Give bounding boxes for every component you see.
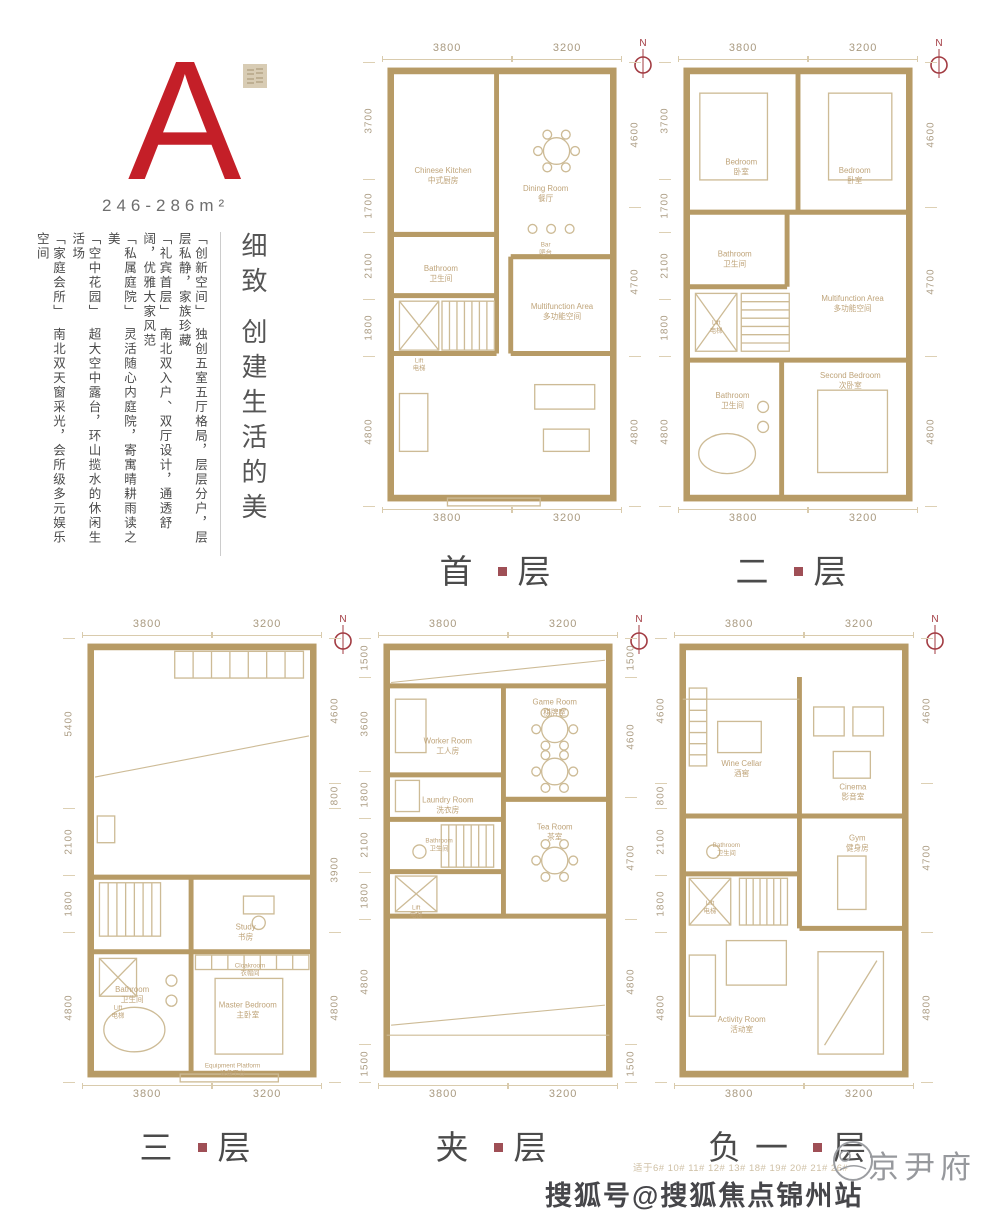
dim-label: 3600 — [352, 677, 378, 771]
dim-label: 2100 — [56, 808, 82, 874]
room-label-en: Bedroom — [839, 166, 871, 175]
floor-title: 夹层 — [352, 1121, 644, 1169]
dim-label: 3800 — [678, 42, 808, 60]
svg-text:N: N — [935, 38, 942, 49]
dim-col-right: 460047004800 — [914, 638, 940, 1083]
marketing-copy: 细致 创建生活的美 「创新空间」 独创五室五厅格局，层层分户，层层私静，家族珍藏… — [86, 232, 272, 556]
dim-label: 1800 — [352, 771, 378, 818]
floor-title: 首层 — [356, 545, 648, 593]
room-label-en: Dining Room — [523, 184, 569, 193]
room-label-en: Bathroom — [718, 250, 752, 259]
dim-label: 3200 — [212, 1085, 322, 1103]
dim-col-left: 5400210018004800 — [56, 638, 82, 1083]
unit-area-range: 246-286m² — [102, 196, 229, 216]
floor-plan-basement: 38003200N4600800210018004800Wine Cellar酒… — [648, 618, 940, 1169]
dim-col-right: 460047004800 — [622, 62, 648, 507]
room-label-en: Wine Cellar — [721, 759, 762, 768]
room-label-zh: 次卧室 — [839, 380, 862, 390]
room-label-en: Bathroom — [425, 838, 452, 845]
room-label-en: Laundry Room — [422, 796, 474, 805]
room-label-en: Lift — [706, 900, 715, 907]
room-label-en: Lift — [712, 320, 721, 327]
dim-label: 2100 — [352, 818, 378, 873]
floor-title-text: 三 — [140, 1129, 187, 1166]
room-label-zh: 电梯 — [413, 363, 426, 372]
plan-body: 1500360018002100180048001500Worker Room工… — [352, 638, 644, 1083]
dim-label: 4600 — [622, 62, 648, 207]
dim-label: 4800 — [652, 356, 678, 507]
dim-label: 3800 — [378, 1085, 508, 1103]
room-label-en: Bathroom — [115, 985, 149, 994]
dim-label: 4700 — [918, 207, 944, 355]
dim-row-bottom: 38003200 — [674, 1085, 914, 1103]
dim-label: 3800 — [678, 509, 808, 527]
room-label-en: Chinese Kitchen — [415, 166, 472, 175]
floor-plan-page: A 246-286m² 细致 创建生活的美 「创新空间」 独创五室五厅格局，层层… — [0, 0, 987, 1211]
dim-col-left: 4600800210018004800 — [648, 638, 674, 1083]
room-label-zh: 多功能空间 — [543, 311, 581, 321]
dim-label: 2100 — [356, 232, 382, 298]
title-dot-icon — [198, 1143, 207, 1152]
room-label-en: Cloakroom — [235, 962, 266, 969]
room-label-zh: 茶室 — [547, 831, 563, 841]
room-label-en: Master Bedroom — [219, 1000, 277, 1009]
room-label-en: Second Bedroom — [820, 371, 881, 380]
dim-label: 800 — [322, 783, 348, 808]
room-label-zh: 书房 — [238, 931, 254, 941]
room-label-en: Cinema — [839, 782, 867, 791]
plan-body: 37001700210018004800Chinese Kitchen中式厨房D… — [356, 62, 648, 507]
room-label-zh: 工人房 — [436, 746, 459, 756]
dim-label: 3800 — [382, 42, 512, 60]
dim-label: 3700 — [652, 62, 678, 179]
dim-row-bottom: 38003200 — [82, 1085, 322, 1103]
dim-label: 3800 — [378, 618, 508, 636]
floor-title-text: 层 — [814, 553, 861, 590]
room-label-zh: 主卧室 — [236, 1009, 259, 1019]
room-label-zh: 设备平台 — [220, 1068, 245, 1077]
room-label-en: Bedroom — [725, 157, 757, 166]
room-label-en: Lift — [412, 904, 421, 911]
floor-title-text: 首 — [440, 553, 487, 590]
dim-label: 4800 — [622, 356, 648, 507]
watermark-text: 搜狐号@搜狐焦点锦州站 — [545, 1174, 863, 1211]
room-label-en: Bathroom — [713, 842, 740, 849]
dim-row-top: 38003200 — [678, 42, 918, 60]
title-dot-icon — [813, 1143, 822, 1152]
dim-label: 1800 — [56, 875, 82, 932]
dim-row-top: 38003200 — [82, 618, 322, 636]
dim-label: 3800 — [382, 509, 512, 527]
dim-label: 4800 — [918, 356, 944, 507]
room-label-zh: 衣帽间 — [241, 968, 260, 977]
dim-row-bottom: 38003200 — [378, 1085, 618, 1103]
room-label-zh: 电梯 — [410, 910, 423, 919]
plan-body: 5400210018004800Study书房Lift电梯Cloakroom衣帽… — [56, 638, 348, 1083]
floor-plan-second-floor: 38003200N37001700210018004800Bedroom卧室Be… — [652, 42, 944, 593]
floor-plan-third-floor: 38003200N5400210018004800Study书房Lift电梯Cl… — [56, 618, 348, 1169]
dim-label: 3200 — [808, 509, 918, 527]
dim-col-left: 37001700210018004800 — [356, 62, 382, 507]
dim-col-left: 1500360018002100180048001500 — [352, 638, 378, 1083]
room-label-zh: 电梯 — [112, 1010, 125, 1019]
room-label-en: Worker Room — [424, 737, 473, 746]
svg-text:N: N — [639, 38, 646, 49]
dim-label: 1500 — [618, 1044, 644, 1083]
floor-plan-drawing: Study书房Lift电梯Cloakroom衣帽间Master Bedroom主… — [82, 638, 322, 1083]
room-label-zh: 洗衣房 — [436, 805, 459, 815]
room-label-zh: 卫生间 — [717, 848, 736, 857]
dim-label: 2100 — [648, 808, 674, 874]
dim-label: 4600 — [618, 677, 644, 797]
floor-title-text: 层 — [514, 1129, 561, 1166]
dim-row-top: 38003200 — [382, 42, 622, 60]
dim-label: 4700 — [618, 797, 644, 919]
dim-label: 4700 — [914, 783, 940, 931]
room-label-en: Game Room — [532, 698, 577, 707]
dim-label: 3200 — [808, 42, 918, 60]
dim-label: 1500 — [352, 1044, 378, 1083]
dim-label: 4800 — [648, 932, 674, 1083]
room-label-zh: 餐厅 — [538, 194, 554, 203]
dim-label: 1800 — [652, 299, 678, 356]
selling-point: 「私属庭院」 灵活随心内庭院，寄寓晴耕雨读之美 — [105, 232, 138, 556]
dim-label: 2100 — [652, 232, 678, 298]
svg-text:N: N — [339, 614, 346, 625]
dim-label: 3800 — [674, 1085, 804, 1103]
room-label-zh: 中式厨房 — [428, 175, 459, 185]
dim-label: 1500 — [352, 638, 378, 677]
dim-label: 4700 — [622, 207, 648, 355]
dim-label: 3800 — [82, 1085, 212, 1103]
floor-plan-drawing: Bedroom卧室Bedroom卧室Bathroom卫生间Multifuncti… — [678, 62, 918, 507]
room-label-zh: 酒窖 — [734, 768, 750, 778]
room-label-en: Multifunction Area — [821, 294, 884, 303]
dim-label: 1500 — [618, 638, 644, 677]
dim-row-top: 38003200 — [674, 618, 914, 636]
room-label-zh: 健身房 — [846, 842, 869, 852]
room-label-en: Gym — [849, 833, 866, 842]
dim-label: 3900 — [322, 808, 348, 931]
room-label-zh: 多功能空间 — [833, 303, 871, 313]
selling-point: 「礼宾首层」 南北双入户、双厅设计，通透舒阔，优雅大家风范 — [140, 232, 173, 556]
room-label-zh: 活动室 — [730, 1024, 753, 1034]
selling-point: 「空中花园」 超大空中露台，环山揽水的休闲生活场 — [69, 232, 102, 556]
dim-label: 800 — [648, 783, 674, 808]
dim-col-left: 37001700210018004800 — [652, 62, 678, 507]
room-label-en: Tea Room — [537, 822, 573, 831]
dim-col-right: 460047004800 — [918, 62, 944, 507]
svg-text:N: N — [931, 614, 938, 625]
plan-body: 4600800210018004800Wine Cellar酒窖Cinema影音… — [648, 638, 940, 1083]
room-label-zh: 卧室 — [847, 175, 863, 185]
dim-label: 4600 — [918, 62, 944, 207]
room-label-en: Bathroom — [424, 264, 458, 273]
brand-name: 京尹府 — [868, 1142, 976, 1187]
room-label-en: Lift — [114, 1005, 123, 1012]
dim-label: 4800 — [618, 919, 644, 1044]
room-label-zh: 电梯 — [704, 906, 717, 915]
room-label-en: Multifunction Area — [531, 302, 594, 311]
dim-col-right: 15004600470048001500 — [618, 638, 644, 1083]
dim-label: 3200 — [212, 618, 322, 636]
floor-plan-first-floor: 38003200N37001700210018004800Chinese Kit… — [356, 42, 648, 593]
dim-label: 3200 — [508, 618, 618, 636]
dim-label: 1700 — [652, 179, 678, 233]
dim-label: 3200 — [512, 42, 622, 60]
dim-label: 3200 — [804, 618, 914, 636]
room-label-zh: 电梯 — [710, 325, 723, 334]
floor-plan-mezzanine: 38003200N1500360018002100180048001500Wor… — [352, 618, 644, 1169]
unit-seal-stamp-icon — [243, 64, 267, 88]
dim-row-bottom: 38003200 — [678, 509, 918, 527]
room-label-zh: 卫生间 — [121, 994, 144, 1004]
floor-plan-drawing: Worker Room工人房Game Room棋牌室Laundry Room洗衣… — [378, 638, 618, 1083]
dim-label: 3200 — [512, 509, 622, 527]
title-dot-icon — [794, 567, 803, 576]
floor-title: 二层 — [652, 545, 944, 593]
floor-title: 三层 — [56, 1121, 348, 1169]
room-label-zh: 卧室 — [734, 166, 750, 176]
floor-title-text: 层 — [518, 553, 565, 590]
room-label-en: Lift — [415, 357, 424, 364]
floor-title-text: 二 — [736, 553, 783, 590]
dim-label: 1800 — [648, 875, 674, 932]
dim-label: 4800 — [322, 932, 348, 1083]
selling-point: 「创新空间」 独创五室五厅格局，层层分户，层层私静，家族珍藏 — [176, 232, 209, 556]
marketing-title: 细致 创建生活的美 — [220, 232, 272, 556]
floor-plan-drawing: Wine Cellar酒窖Cinema影音室Bathroom卫生间Gym健身房L… — [674, 638, 914, 1083]
dim-label: 4800 — [914, 932, 940, 1083]
dim-label: 3200 — [804, 1085, 914, 1103]
dim-label: 3700 — [356, 62, 382, 179]
room-label-zh: 影音室 — [841, 791, 864, 801]
room-label-zh: 卫生间 — [723, 259, 746, 269]
svg-text:N: N — [635, 614, 642, 625]
selling-point: 「家庭会所」 南北双天窗采光，会所级多元娱乐空间 — [34, 232, 67, 556]
room-label-zh: 卫生间 — [429, 273, 452, 283]
room-label-zh: 卫生间 — [430, 843, 449, 852]
dim-label: 4800 — [356, 356, 382, 507]
dim-row-top: 38003200 — [378, 618, 618, 636]
dim-label: 4600 — [914, 638, 940, 783]
dim-label: 3800 — [82, 618, 212, 636]
room-label-en: Bar — [541, 242, 552, 249]
dim-row-bottom: 38003200 — [382, 509, 622, 527]
dim-label: 4800 — [352, 919, 378, 1044]
plan-body: 37001700210018004800Bedroom卧室Bedroom卧室Ba… — [652, 62, 944, 507]
room-label-zh: 卫生间 — [721, 400, 744, 410]
dim-col-right: 460080039004800 — [322, 638, 348, 1083]
room-label-en: Equipment Platform — [205, 1062, 260, 1069]
dim-label: 4600 — [322, 638, 348, 783]
dim-label: 1700 — [356, 179, 382, 233]
room-label-zh: 棋牌室 — [543, 707, 566, 717]
floor-title-text: 层 — [218, 1129, 265, 1166]
room-label-en: Bathroom — [716, 391, 750, 400]
unit-type-letter: A — [128, 36, 241, 206]
dim-label: 1800 — [356, 299, 382, 356]
room-label-en: Study — [236, 922, 256, 931]
dim-label: 4600 — [648, 638, 674, 783]
dim-label: 5400 — [56, 638, 82, 808]
dim-label: 1800 — [352, 872, 378, 919]
title-dot-icon — [494, 1143, 503, 1152]
floor-plan-drawing: Chinese Kitchen中式厨房Dining Room餐厅Bar吧台Bat… — [382, 62, 622, 507]
room-label-en: Activity Room — [718, 1015, 766, 1024]
title-dot-icon — [498, 567, 507, 576]
floor-title-text: 夹 — [436, 1129, 483, 1166]
dim-label: 3200 — [508, 1085, 618, 1103]
dim-label: 4800 — [56, 932, 82, 1083]
dim-label: 3800 — [674, 618, 804, 636]
room-label-zh: 吧台 — [539, 247, 552, 256]
